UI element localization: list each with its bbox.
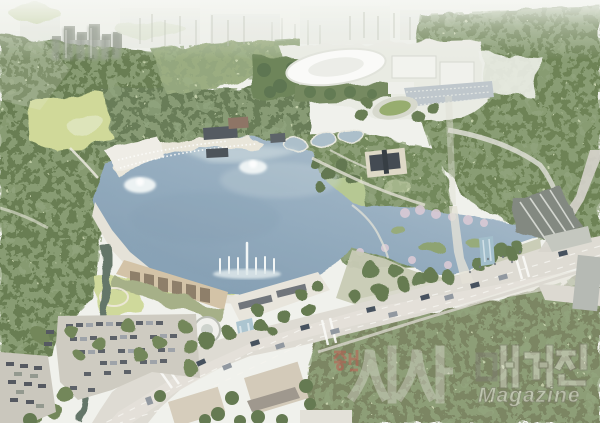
svg-text:Magazine: Magazine xyxy=(478,384,581,407)
